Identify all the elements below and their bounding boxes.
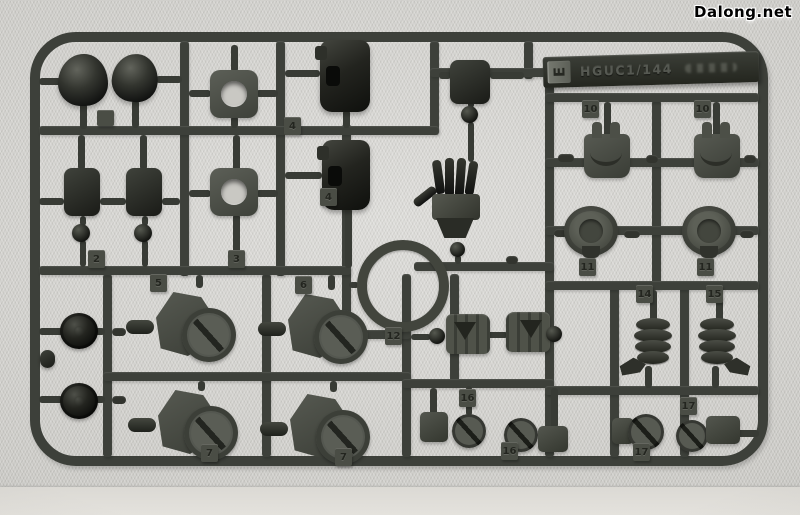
- duct-fin: [700, 150, 732, 166]
- runner-stem: [80, 103, 87, 129]
- part-number-tab: 16: [459, 389, 476, 407]
- runner-label-tag: E HGUC1/144: [543, 51, 760, 88]
- part-socket: [579, 219, 603, 243]
- part-notch: [700, 246, 718, 258]
- part-number-tab: 3: [228, 250, 245, 268]
- clip-hook: [317, 146, 329, 160]
- runner-stem: [285, 172, 322, 179]
- ball-joint: [461, 106, 478, 123]
- runner-rail: [103, 274, 112, 457]
- ball-joint: [429, 328, 445, 344]
- runner-stem: [490, 72, 524, 79]
- cap-center: [74, 326, 84, 336]
- side-cylinder: [260, 422, 288, 436]
- clip-slot: [328, 166, 342, 186]
- round-cap-part: [60, 383, 98, 419]
- runner-stem: [233, 135, 240, 172]
- runner-letter: E: [547, 61, 571, 84]
- part-number-tab: 17: [680, 397, 697, 415]
- cap-center: [74, 396, 84, 406]
- runner-stem: [156, 76, 182, 83]
- runner-rail: [430, 41, 439, 133]
- runner-stem: [39, 198, 64, 205]
- runner-peg: [506, 256, 518, 264]
- disc-with-slash: [314, 310, 368, 364]
- dark-clip-part: [320, 40, 370, 112]
- bellows-hose-part: [698, 318, 736, 372]
- part-number-tab: 6: [295, 276, 312, 294]
- blank-tab: [97, 110, 114, 126]
- duct-part: [694, 134, 740, 178]
- ball-joint: [72, 224, 90, 242]
- ring-collar-part: [210, 70, 258, 118]
- ball-joint: [134, 224, 152, 242]
- small-block-part: [40, 350, 55, 368]
- watermark: Dalong.net: [694, 3, 792, 21]
- round-collar-part: [564, 206, 618, 256]
- bellows-hose-part: [634, 318, 672, 372]
- duct-prong: [720, 122, 730, 138]
- runner-peg: [744, 155, 756, 163]
- side-cylinder: [128, 418, 156, 432]
- runner-stem: [713, 102, 720, 138]
- elbow-block-part: [420, 412, 448, 442]
- side-cylinder: [126, 320, 154, 334]
- ball-joint: [450, 242, 465, 257]
- runner-stem: [343, 110, 350, 128]
- runner-peg: [112, 328, 126, 336]
- runner-stem: [256, 190, 278, 197]
- runner-rail: [545, 386, 759, 395]
- runner-rail: [39, 126, 439, 135]
- runner-stem: [162, 198, 180, 205]
- part-hole: [221, 81, 247, 107]
- part-number-tab: 12: [385, 327, 402, 345]
- duct-prong: [592, 122, 602, 138]
- joint-disc-part: [676, 420, 708, 452]
- palm-wedge: [436, 218, 474, 238]
- part-notch: [582, 246, 600, 258]
- round-collar-part: [682, 206, 736, 256]
- runner-stem: [100, 198, 126, 205]
- elbow-block-part: [538, 426, 568, 452]
- part-number-tab: 14: [636, 285, 653, 303]
- runner-stem: [231, 45, 238, 72]
- runner-rail: [103, 372, 411, 381]
- runner-peg: [112, 396, 126, 404]
- side-cylinder: [258, 322, 286, 336]
- runner-stem: [256, 90, 278, 97]
- ball-joint: [546, 326, 562, 342]
- part-number-tab: 11: [579, 258, 596, 276]
- runner-stem: [80, 240, 86, 267]
- armor-disc-part: [158, 384, 240, 466]
- part-number-tab: 15: [706, 285, 723, 303]
- fist-notch: [454, 322, 476, 340]
- part-number-tab: 10: [694, 100, 711, 118]
- runner-rail: [545, 93, 759, 102]
- embossed-text-smudge: [685, 63, 737, 73]
- joint-block-part: [450, 60, 490, 104]
- clip-slot: [326, 66, 340, 86]
- runner-stem: [132, 100, 139, 128]
- palm: [432, 194, 480, 220]
- runner-stem: [285, 70, 320, 77]
- runner-stem: [142, 240, 148, 267]
- part-number-tab: 11: [697, 258, 714, 276]
- runner-peg: [646, 155, 658, 163]
- runner-rail: [39, 266, 351, 275]
- duct-part: [584, 134, 630, 178]
- part-number-tab: 7: [335, 448, 352, 466]
- part-number-tab: 5: [150, 274, 167, 292]
- part-hole: [221, 179, 247, 205]
- runner-rail: [652, 100, 661, 290]
- part-number-tab: 4: [320, 188, 337, 206]
- disc-with-slash: [182, 308, 236, 362]
- runner-rail: [276, 41, 285, 276]
- joint-disc-part: [452, 414, 486, 448]
- sprue-runner: 2 3 4 4 5 6 7 7 10 10 11 11 12 14 15 16 …: [0, 0, 800, 515]
- runner-peg: [740, 230, 754, 238]
- runner-stem: [78, 135, 85, 170]
- runner-rail: [402, 379, 554, 388]
- runner-peg: [624, 230, 640, 238]
- round-cap-part: [60, 313, 98, 349]
- armor-disc-part: [156, 286, 238, 370]
- runner-stem: [468, 122, 474, 162]
- part-number-tab: 2: [88, 250, 105, 268]
- duct-prong: [610, 122, 620, 138]
- runner-stem: [140, 135, 147, 170]
- duct-prong: [702, 122, 712, 138]
- fist-part: [506, 312, 550, 352]
- runner-peg: [558, 154, 574, 162]
- ring-collar-part: [210, 168, 258, 216]
- runner-stem: [411, 334, 431, 340]
- runner-stem: [189, 90, 211, 97]
- part-number-tab: 10: [582, 100, 599, 118]
- armor-disc-part: [290, 388, 372, 466]
- fist-notch: [520, 320, 542, 338]
- runner-scale-text: HGUC1/144: [580, 61, 673, 79]
- finger: [445, 158, 454, 196]
- ball-post-part: [64, 168, 100, 216]
- ball-post-part: [126, 168, 162, 216]
- duct-fin: [590, 150, 622, 166]
- runner-stem: [551, 388, 558, 428]
- helmet-dome-part: [58, 54, 108, 106]
- part-number-tab: 4: [284, 117, 301, 135]
- clip-hook: [315, 46, 327, 60]
- fist-part: [446, 314, 490, 354]
- part-number-tab: 7: [201, 444, 218, 462]
- photo-model-kit-sprue: 2 3 4 4 5 6 7 7 10 10 11 11 12 14 15 16 …: [0, 0, 800, 515]
- armor-disc-part: [288, 288, 370, 372]
- elbow-block-part: [706, 416, 740, 444]
- large-ring-part: [357, 240, 449, 332]
- part-number-tab: 16: [501, 442, 518, 460]
- part-number-tab: 17: [633, 443, 650, 461]
- finger: [464, 161, 478, 196]
- runner-stem: [345, 208, 352, 268]
- part-socket: [697, 219, 721, 243]
- runner-stem: [189, 190, 211, 197]
- open-hand-part: [420, 158, 504, 254]
